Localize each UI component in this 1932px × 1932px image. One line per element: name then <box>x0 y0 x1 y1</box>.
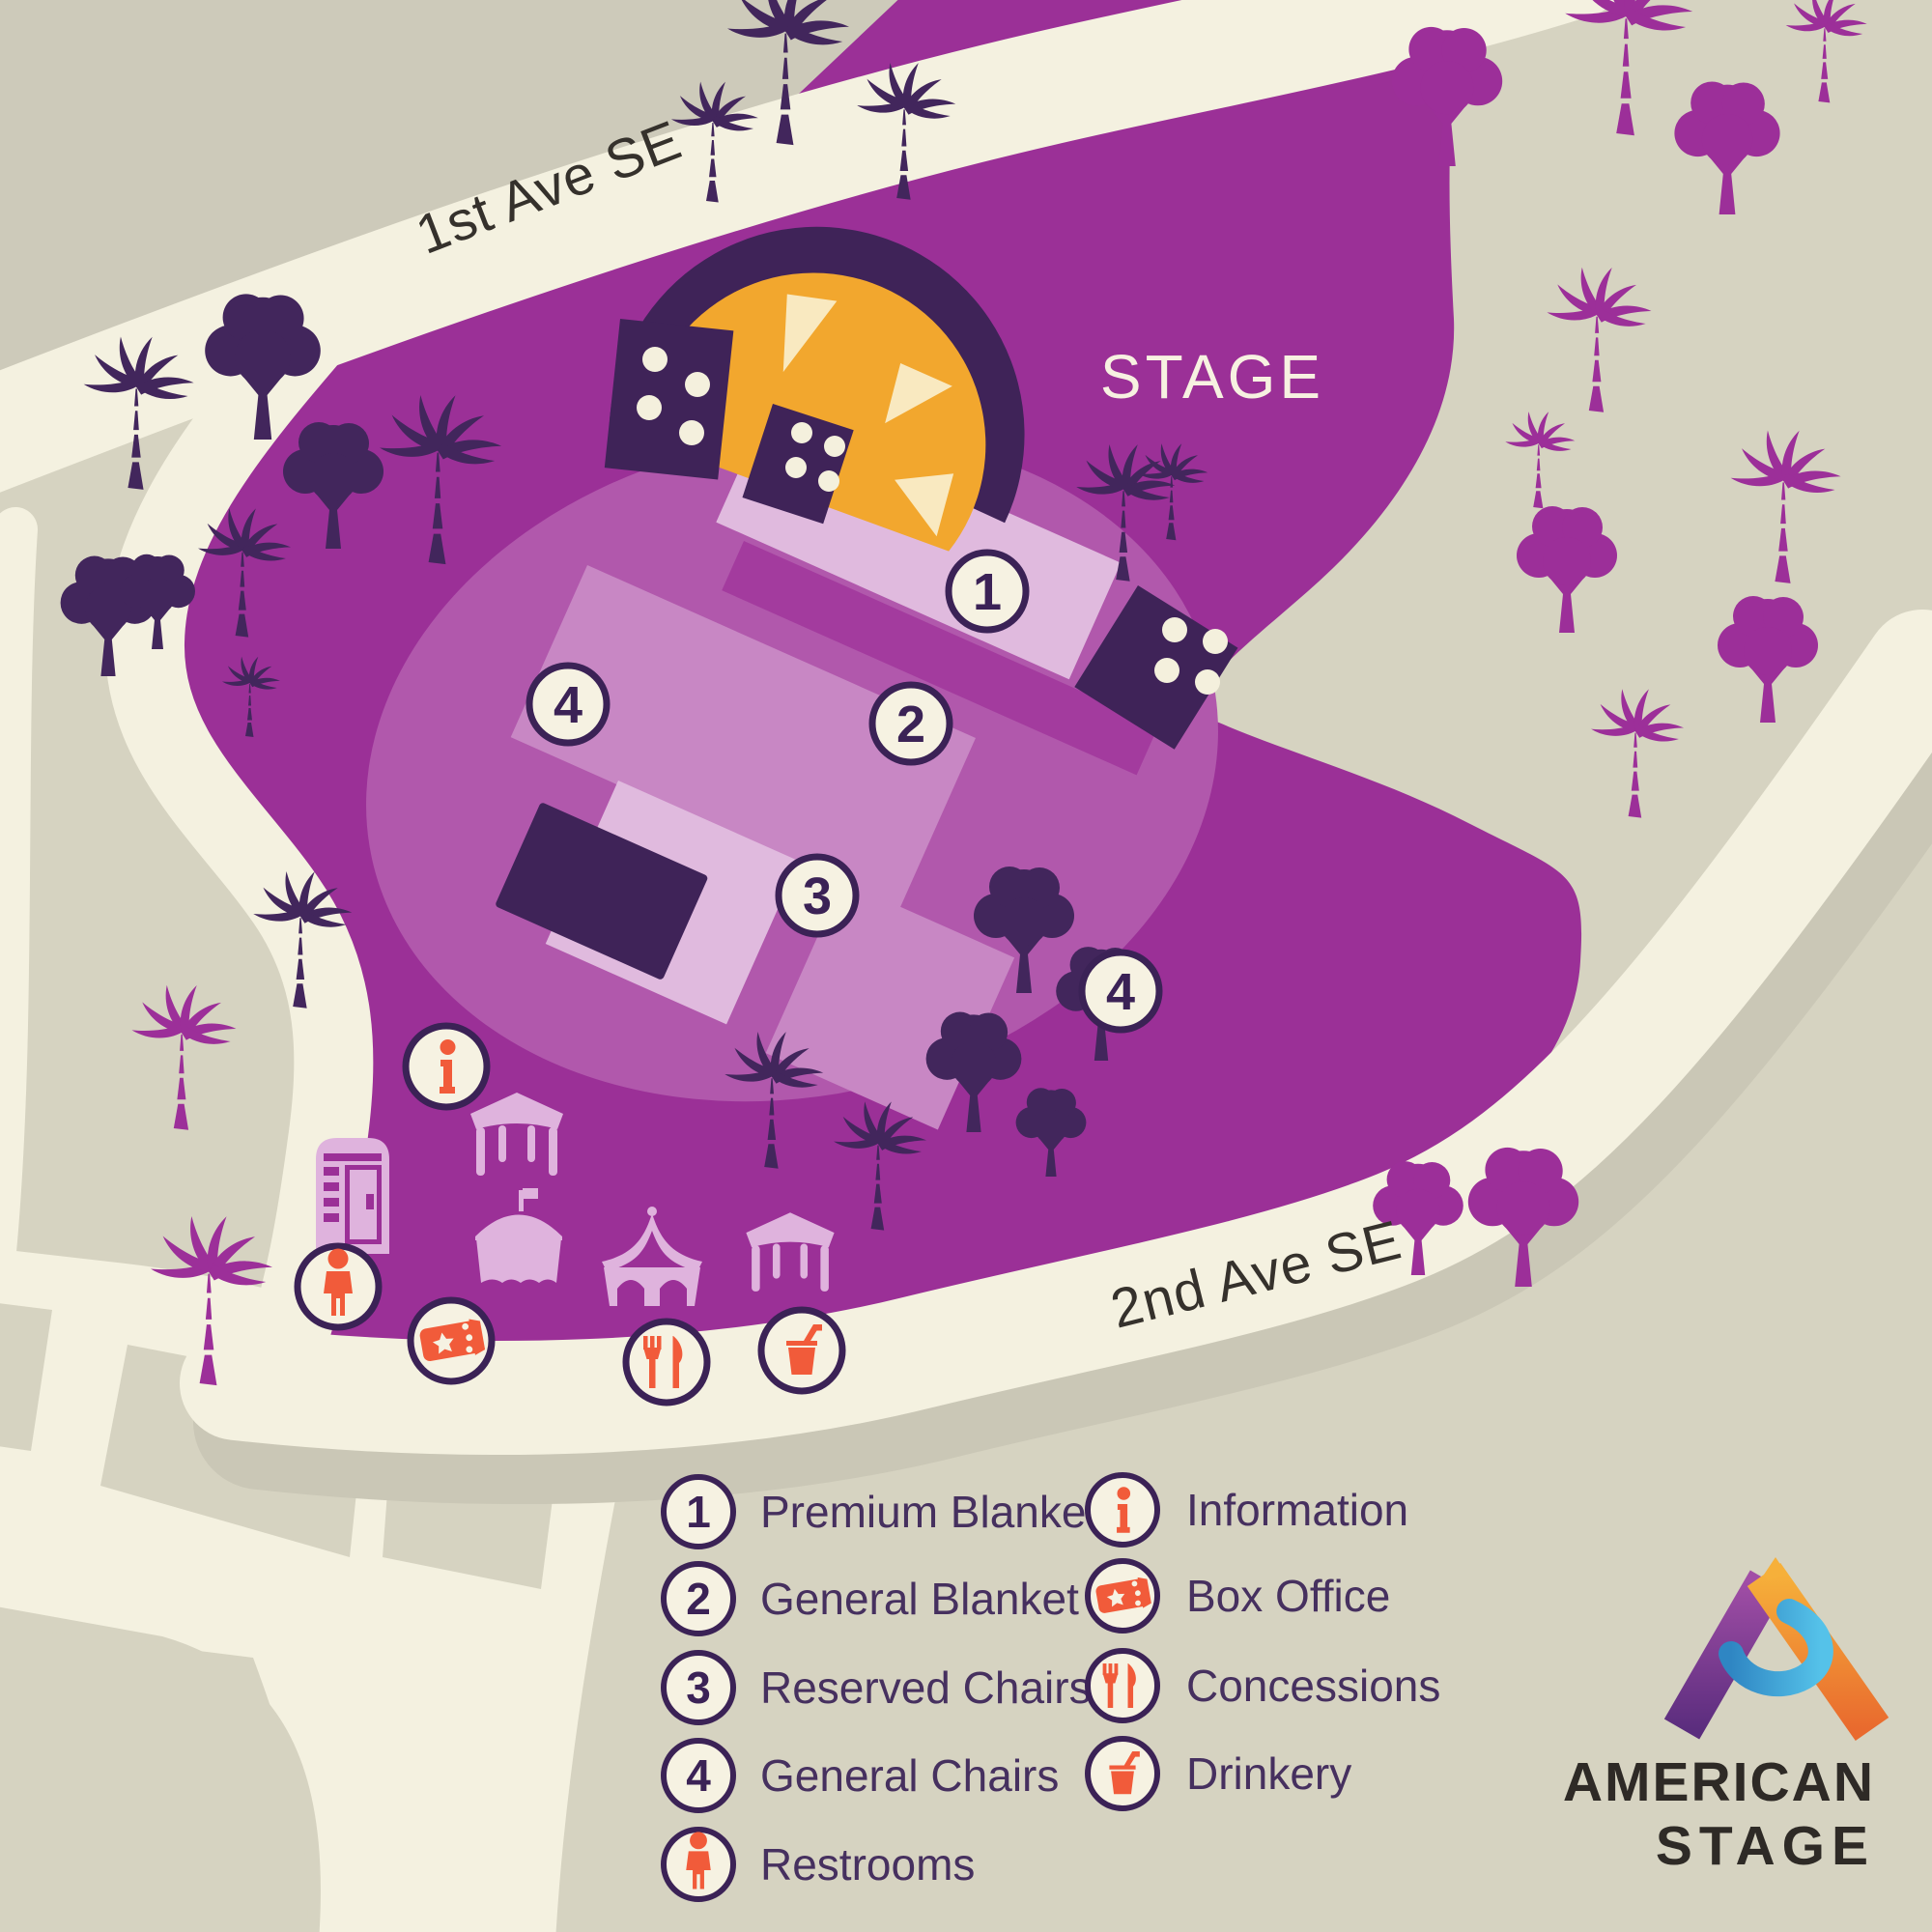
zone-marker-4-west: 4 <box>529 666 607 743</box>
legend-item-concessions: Concessions <box>1088 1651 1440 1720</box>
legend-item-general-blanket: 2 General Blanket <box>664 1564 1079 1634</box>
information-marker <box>406 1026 487 1107</box>
box-office-marker <box>411 1300 492 1381</box>
zone-3-number: 3 <box>803 867 832 925</box>
logo-line-2: STAGE <box>1656 1815 1875 1877</box>
legend-item-general-chairs: 4 General Chairs <box>664 1741 1059 1810</box>
legend-label: Premium Blanket <box>760 1487 1098 1537</box>
zone-marker-4-east: 4 <box>1082 952 1159 1030</box>
zone-4-number: 4 <box>554 676 582 734</box>
drinkery-marker <box>761 1310 842 1391</box>
stage-label: STAGE <box>1100 342 1324 412</box>
porta-potty-icon <box>316 1138 389 1254</box>
legend-label: General Blanket <box>760 1574 1079 1624</box>
legend-label: Restrooms <box>760 1839 975 1889</box>
zone-marker-3: 3 <box>779 857 856 934</box>
zone-1-number: 1 <box>973 563 1002 621</box>
concessions-marker <box>626 1321 707 1403</box>
zone-marker-2: 2 <box>872 685 950 762</box>
legend-item-drinkery: Drinkery <box>1088 1739 1351 1808</box>
legend-label: Information <box>1186 1485 1408 1535</box>
legend-number: 2 <box>686 1574 711 1624</box>
restrooms-marker <box>298 1246 379 1327</box>
legend-number: 4 <box>686 1750 711 1801</box>
logo-line-1: AMERICAN <box>1563 1751 1875 1813</box>
zone-marker-1: 1 <box>949 553 1026 630</box>
edge-path <box>0 529 15 1251</box>
zone-2-number: 2 <box>896 696 925 753</box>
legend-label: Concessions <box>1186 1661 1440 1711</box>
legend-label: Reserved Chairs <box>760 1662 1092 1713</box>
legend-label: Drinkery <box>1186 1748 1351 1799</box>
legend-number: 3 <box>686 1662 711 1713</box>
legend-item-box-office: Box Office <box>1088 1561 1390 1631</box>
zone-4-number: 4 <box>1106 963 1135 1021</box>
legend-number: 1 <box>686 1487 711 1537</box>
legend-label: Box Office <box>1186 1571 1390 1621</box>
legend-item-information: Information <box>1088 1475 1408 1545</box>
map-svg: 1 2 3 4 4 <box>0 0 1932 1932</box>
festival-map: 1 2 3 4 4 <box>0 0 1932 1932</box>
legend-label: General Chairs <box>760 1750 1059 1801</box>
legend-item-restrooms: Restrooms <box>664 1830 975 1899</box>
